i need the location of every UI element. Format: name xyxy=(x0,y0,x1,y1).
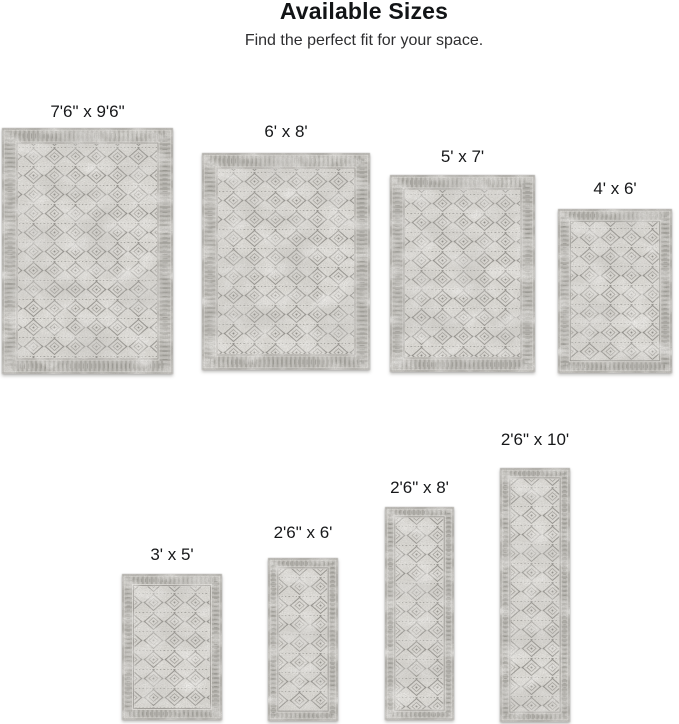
size-label: 4' x 6' xyxy=(593,179,636,199)
size-label: 5' x 7' xyxy=(441,147,484,167)
size-label: 6' x 8' xyxy=(264,122,307,142)
rug-image-2-6x10 xyxy=(500,468,570,722)
size-option-6x8: 6' x 8' xyxy=(202,153,370,370)
rug-image-7-6x9-6 xyxy=(2,128,173,374)
rug-image-3x5 xyxy=(122,574,222,720)
size-option-2-6x6: 2'6" x 6' xyxy=(268,558,338,721)
size-option-4x6: 4' x 6' xyxy=(558,209,672,373)
size-label: 7'6" x 9'6" xyxy=(50,102,124,122)
size-label: 2'6" x 10' xyxy=(501,430,569,450)
size-option-3x5: 3' x 5' xyxy=(122,574,222,720)
rug-image-5x7 xyxy=(390,175,535,372)
rug-image-6x8 xyxy=(202,153,370,370)
rug-image-2-6x6 xyxy=(268,558,338,721)
size-option-2-6x10: 2'6" x 10' xyxy=(500,468,570,722)
size-label: 2'6" x 8' xyxy=(390,478,449,498)
size-option-5x7: 5' x 7' xyxy=(390,175,535,372)
size-option-2-6x8: 2'6" x 8' xyxy=(385,507,454,720)
page-title: Available Sizes xyxy=(280,0,448,25)
page-subtitle: Find the perfect fit for your space. xyxy=(245,31,483,51)
size-label: 3' x 5' xyxy=(150,545,193,565)
size-option-7-6x9-6: 7'6" x 9'6" xyxy=(2,128,173,374)
rug-image-4x6 xyxy=(558,209,672,373)
available-sizes-panel: Available Sizes Find the perfect fit for… xyxy=(0,0,679,724)
size-label: 2'6" x 6' xyxy=(274,523,333,543)
rug-image-2-6x8 xyxy=(385,507,454,720)
